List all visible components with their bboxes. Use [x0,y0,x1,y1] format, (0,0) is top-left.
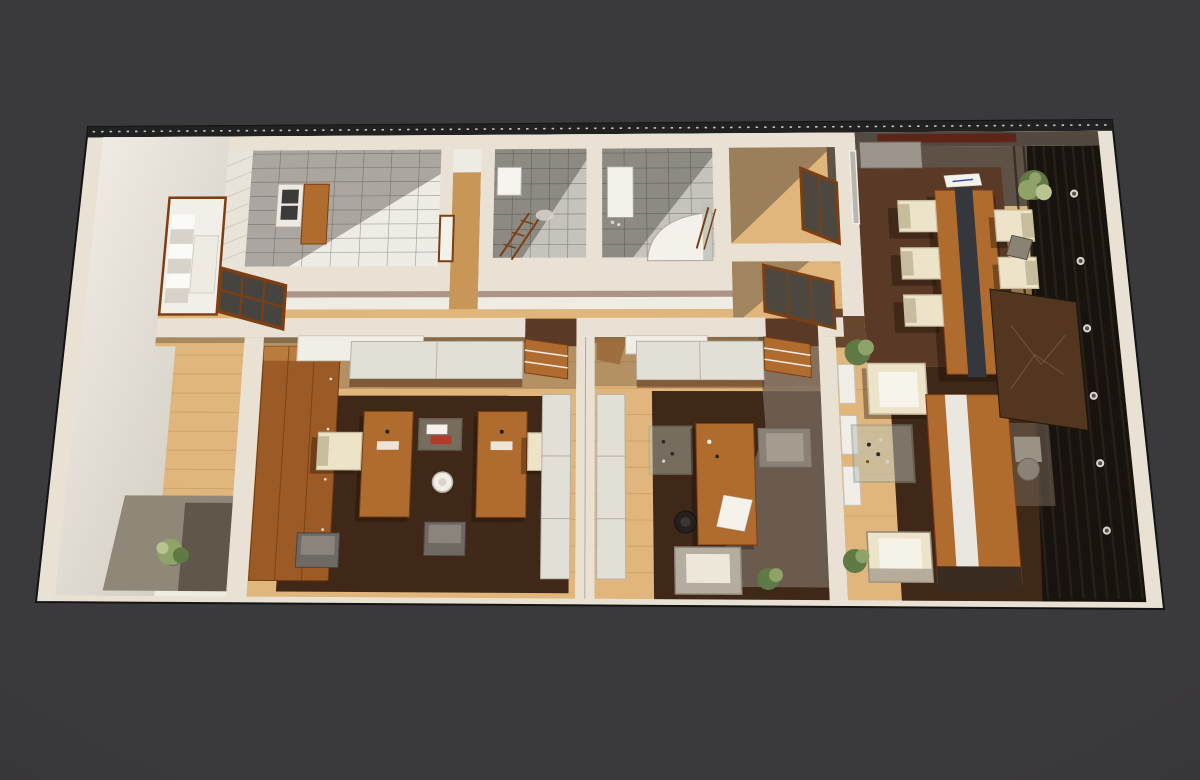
dining-chair-right-back [1025,261,1039,285]
stair-step [171,214,195,229]
office1-magazine [427,425,448,435]
office1-chair-left-back [317,436,330,466]
dining-plant [1036,184,1052,200]
bathrooms-south-wall-shadow [478,291,733,298]
office2-black-chair-hub [681,517,691,527]
wardrobe-handle [321,528,324,531]
desk-paper [377,441,399,450]
corridor-plant [157,542,169,554]
stair-step [167,259,192,274]
office1-cube-seat-top [428,525,461,543]
bathroom1-niche [497,167,521,195]
corridor-dark-shade [178,503,233,591]
wardrobe-handle [330,378,333,381]
office2-sideboard-shadow [637,380,765,388]
office1-cube-seat-top [301,536,336,555]
bathroom-divider-wall [586,138,602,261]
dining-chair-right-back [1021,213,1035,237]
glass-table-bottle [671,452,675,456]
bathrooms-south-wall [478,257,732,291]
wall-sconce-core [1098,461,1102,465]
wall-sconce-core [1085,326,1089,330]
office1-tall-cabinet [541,394,571,579]
coffee-table [852,425,915,482]
wall-sconce-core [1105,529,1109,533]
coffee-table-bottle [867,443,871,447]
office1-magazine [431,436,452,445]
desk-item [715,455,719,459]
office2-tall-cabinet [597,394,626,579]
stair-landing [190,236,219,293]
office2-shelf-unit [764,337,812,378]
bathroom2-vanity [607,167,633,218]
glass-table-glass [662,460,665,463]
floorplan-render [0,0,1200,780]
office1-desk-b [476,412,527,518]
corridor-plant [173,547,189,563]
dining-chair-left-back [901,251,914,275]
coffee-table-bottle [876,452,880,456]
desk-item [500,430,504,434]
executive-desk-modesty [937,566,1023,591]
cooktop-burner-b [280,206,298,220]
dining-chair-left-back [898,204,911,228]
lounge-wall-shelf [838,365,856,404]
office1-shelf-unit [525,339,568,379]
kitchen-cabinet [301,184,330,244]
coffee-table-bottle [866,460,869,463]
office1-sideboard-shadow [349,379,522,387]
bathroom2-bottle-b [617,223,620,226]
offices-north-wall-mid [577,318,766,338]
wall-sconce-core [1092,394,1096,398]
armchair-upper-cushion [878,372,919,408]
dining-plant [1029,172,1041,184]
bathroom2-right-wall [712,137,732,268]
desk-item [707,440,711,444]
wardrobe-handle [324,478,327,481]
dining-chair-left-back [904,298,917,322]
wardrobe-handle [327,428,330,431]
desk-item [385,430,389,434]
bathroom2-bottle-a [611,221,615,225]
desk-paper [491,441,513,450]
office1-magazine-table [418,419,462,450]
art-panel [990,289,1088,430]
wall-sconce-core [1072,192,1076,196]
render-viewport [0,0,1200,780]
cooktop-burner-a [282,190,300,204]
stair-step [168,244,192,259]
stair-step [164,288,189,303]
office1-desk-a [359,411,413,517]
dining-credenza [859,142,923,169]
stair-step [166,274,191,289]
office2-armchair-cushion [686,554,730,583]
office2-plant [769,568,783,582]
desk-chair-seat [1017,458,1039,480]
coffee-table-glass [886,460,890,464]
coffee-table-glass [879,438,882,441]
stair-step [170,229,194,244]
armchair-lower-base [869,568,934,582]
kitchen-door [439,216,454,262]
office2-guest-chair-cushion [766,433,804,461]
armchair-lower-cushion [878,538,922,571]
office2-glass-table [649,426,692,474]
lounge-plant-lower [856,549,870,563]
offices-north-wall-left [156,318,526,338]
wall-sconce-core [1079,259,1083,263]
glass-table-bottle [662,440,666,444]
bathroom1-oval-mat [536,210,554,221]
office1-office-chair-hub [439,478,447,486]
lounge-plant-upper [858,340,874,356]
